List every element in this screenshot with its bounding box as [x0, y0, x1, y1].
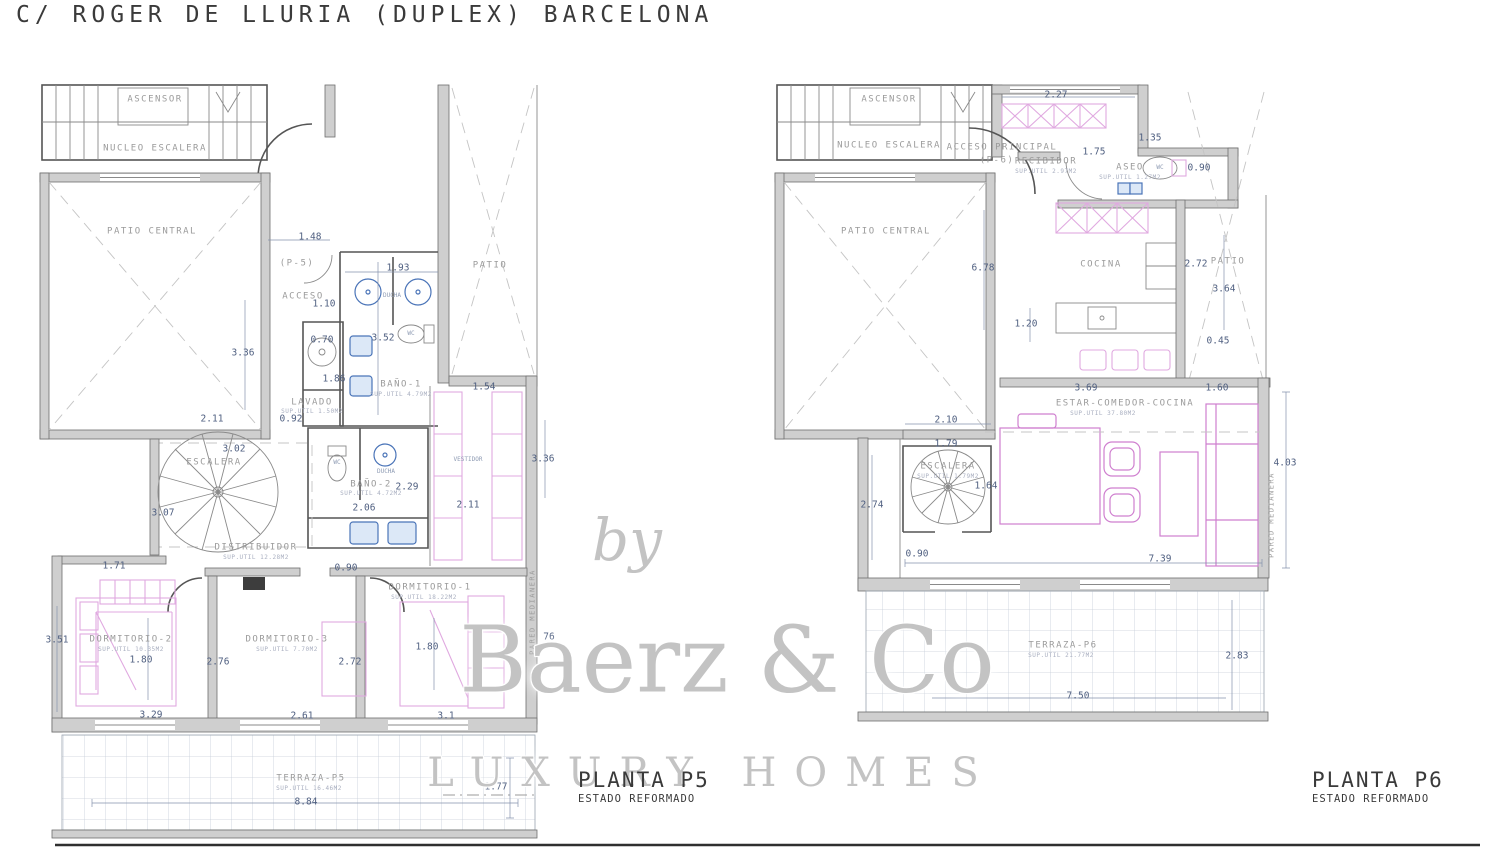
dimension-label: 2.83 [1226, 651, 1249, 661]
dimension-label: 1.10 [313, 299, 336, 309]
room-label-patio-p6: PATIO [1211, 258, 1246, 267]
dimension-label: 1.60 [1206, 383, 1229, 393]
plan-label: SUP.UTIL 37.80M2 [1070, 411, 1136, 417]
plan-label: DUCHA [377, 469, 395, 475]
plan-label: SUP.UTIL 2.97M2 [1015, 169, 1077, 175]
plan-label: WC [1156, 165, 1163, 171]
dimension-label: 7.50 [1067, 691, 1090, 701]
dimension-label: 1.93 [387, 263, 410, 273]
plan-p6-status: ESTADO REFORMADO [1312, 793, 1444, 805]
dimension-label: 0.92 [280, 414, 303, 424]
room-label-dormitorio-1: DORMITORIO-1 [388, 584, 471, 593]
dimension-label: 8.84 [295, 797, 318, 807]
dimension-label: 1.71 [103, 561, 126, 571]
dimension-label: 3.36 [232, 348, 255, 358]
dimension-label: 1.79 [935, 439, 958, 449]
dimension-label: 2.61 [291, 711, 314, 721]
plan-label: SUP.UTIL 4.72M2 [340, 491, 402, 497]
dimension-label: 0.90 [1188, 163, 1211, 173]
room-label-vestidor: VESTIDOR [454, 457, 483, 463]
room-label-cocina: COCINA [1080, 261, 1122, 270]
room-label-estar-comedor-cocina: ESTAR-COMEDOR-COCINA [1056, 400, 1194, 409]
drawing-title: C/ ROGER DE LLURIA (DUPLEX) BARCELONA [16, 2, 713, 28]
dimension-label: 3.1 [437, 711, 454, 721]
floor-plan-sheet: C/ ROGER DE LLURIA (DUPLEX) BARCELONA .w… [0, 0, 1486, 852]
watermark-by: by [592, 506, 662, 574]
dimension-label: 0.45 [1207, 336, 1230, 346]
plan-label: SUP.UTIL 4.79M2 [370, 392, 432, 398]
dimension-label: 1.75 [1083, 147, 1106, 157]
label-pared-medianera-p6: PARED MEDIANERA [1269, 472, 1276, 558]
dimension-label: 6.78 [972, 263, 995, 273]
dimension-label: 2.29 [396, 482, 419, 492]
room-label-recibidor: RECIBIDOR [1015, 158, 1077, 167]
watermark-tagline: LUXURY HOMES [427, 750, 997, 796]
dimension-label: 4.03 [1274, 458, 1297, 468]
room-label-dormitorio-2: DORMITORIO-2 [89, 636, 172, 645]
room-label-dormitorio-3: DORMITORIO-3 [245, 636, 328, 645]
dimension-label: 3.07 [152, 508, 175, 518]
dimension-label: 2.76 [207, 657, 230, 667]
plan-label: SUP.UTIL 18.22M2 [391, 595, 457, 601]
labels-layer: ASCENSORNUCLEO ESCALERAPATIO CENTRALPATI… [0, 0, 1486, 852]
plan-label: SUP.UTIL 16.46M2 [276, 786, 342, 792]
plan-label: SUP.UTIL 1.27M2 [1099, 175, 1161, 181]
dimension-label: 3.02 [223, 444, 246, 454]
room-label-aseo: ASEO [1116, 164, 1144, 173]
room-label-banyo-2: BAÑO-2 [350, 481, 392, 490]
label-p5-level: (P-5) [280, 260, 315, 269]
room-label-patio-central-p6: PATIO CENTRAL [841, 228, 931, 237]
plan-p6-name: PLANTA P6 [1312, 768, 1444, 792]
plan-label: WC [333, 460, 340, 466]
plan-label: SUP.UTIL 7.70M2 [256, 647, 318, 653]
dimension-label: 0.90 [906, 549, 929, 559]
dimension-label: 3.69 [1075, 383, 1098, 393]
room-label-escalera-p5: ESCALERA [186, 459, 241, 468]
dimension-label: 2.72 [1185, 259, 1208, 269]
room-label-banyo-1: BAÑO-1 [380, 381, 422, 390]
dimension-label: 1.64 [975, 481, 998, 491]
dimension-label: 1.54 [473, 382, 496, 392]
dimension-label: 2.10 [935, 415, 958, 425]
room-label-distribuidor: DISTRIBUIDOR [214, 544, 297, 553]
plan-p5-status: ESTADO REFORMADO [578, 793, 710, 805]
dimension-label: 3.52 [372, 333, 395, 343]
dimension-label: 1.35 [1139, 133, 1162, 143]
room-label-nucleo-escalera-p6: NUCLEO ESCALERA [837, 142, 941, 151]
plan-label: WC [407, 331, 414, 337]
plan-label: SUP.UTIL 1.50M2 [281, 409, 343, 415]
dimension-label: 1.86 [323, 374, 346, 384]
label-p6-level: (P-6) [980, 157, 1015, 166]
room-label-ascensor-p6: ASCENSOR [861, 96, 916, 105]
dimension-label: 2.11 [201, 414, 224, 424]
room-label-nucleo-escalera-p5: NUCLEO ESCALERA [103, 145, 207, 154]
dimension-label: 1.80 [416, 642, 439, 652]
room-label-terraza-p6: TERRAZA-P6 [1028, 642, 1097, 651]
dimension-label: 3.51 [46, 635, 69, 645]
room-label-terraza-p5: TERRAZA-P5 [276, 775, 345, 784]
plan-label: SUP.UTIL 1.79M2 [917, 474, 979, 480]
plan-label: SUP.UTIL 10.35M2 [98, 647, 164, 653]
dimension-label: 2.27 [1045, 90, 1068, 100]
room-label-lavado: LAVADO [291, 399, 333, 408]
room-label-escalera-p6: ESCALERA [920, 463, 975, 472]
dimension-label: 1.80 [130, 655, 153, 665]
room-label-acceso-principal: ACCESO PRINCIPAL [947, 144, 1058, 153]
dimension-label: 3.64 [1213, 284, 1236, 294]
plan-label: SUP.UTIL 21.77M2 [1028, 653, 1094, 659]
dimension-label: 1.20 [1015, 319, 1038, 329]
plan-p6-title-block: PLANTA P6 ESTADO REFORMADO [1312, 768, 1444, 805]
dimension-label: 0.70 [311, 335, 334, 345]
dimension-label: 2.72 [339, 657, 362, 667]
dimension-label: 2.11 [457, 500, 480, 510]
plan-label: SUP.UTIL 12.28M2 [223, 555, 289, 561]
plan-p5-title-block: PLANTA P5 ESTADO REFORMADO [578, 768, 710, 805]
room-label-ascensor-p5: ASCENSOR [127, 96, 182, 105]
plan-label: DUCHA [383, 293, 401, 299]
dimension-label: 0.90 [335, 563, 358, 573]
dimension-label: 1.48 [299, 232, 322, 242]
room-label-patio-p5: PATIO [473, 262, 508, 271]
dimension-label: 2.74 [861, 500, 884, 510]
dimension-label: 7.39 [1149, 554, 1172, 564]
dimension-label: 2.06 [353, 503, 376, 513]
plan-p5-name: PLANTA P5 [578, 768, 710, 792]
dimension-label: 3.29 [140, 710, 163, 720]
room-label-patio-central-p5: PATIO CENTRAL [107, 228, 197, 237]
dimension-label: 3.36 [532, 454, 555, 464]
watermark-brand: Baerz & Co [459, 607, 995, 714]
